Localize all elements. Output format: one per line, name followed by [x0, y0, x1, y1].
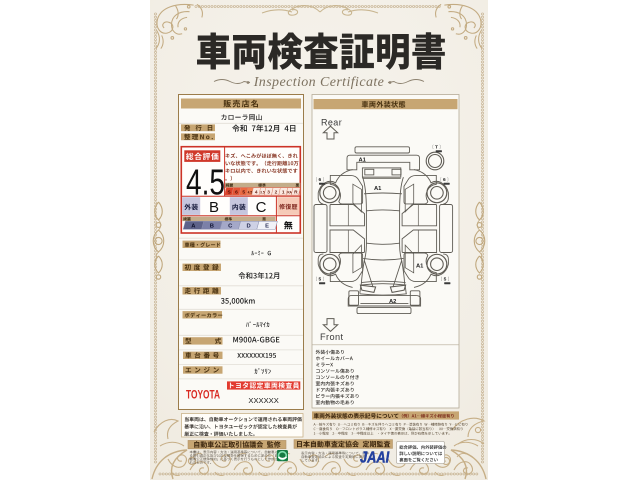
svg-text:D: D — [247, 223, 251, 229]
svg-text:Rear: Rear — [321, 118, 342, 128]
svg-text:T: T — [435, 145, 438, 151]
svg-text:6: 6 — [443, 177, 446, 183]
svg-text:R: R — [294, 190, 298, 196]
svg-text:C: C — [256, 199, 267, 216]
svg-text:5: 5 — [444, 277, 447, 283]
svg-text:3.5: 3.5 — [260, 191, 265, 195]
svg-text:B: B — [210, 223, 214, 229]
svg-text:4: 4 — [255, 190, 258, 196]
svg-text:A1: A1 — [374, 186, 382, 192]
svg-text:6: 6 — [318, 177, 321, 183]
svg-text:A1: A1 — [359, 158, 367, 164]
svg-text:A2: A2 — [389, 299, 396, 305]
svg-text:B: B — [209, 199, 219, 216]
svg-text:TOYOTA: TOYOTA — [186, 389, 221, 402]
svg-text:2: 2 — [275, 190, 278, 196]
svg-text:5: 5 — [318, 277, 321, 283]
svg-text:4.5: 4.5 — [248, 191, 253, 195]
svg-text:Inspection Certificate: Inspection Certificate — [253, 75, 385, 90]
svg-text:XXXXXX: XXXXXX — [248, 396, 278, 405]
svg-text:E: E — [265, 223, 269, 229]
svg-text:A1: A1 — [416, 264, 424, 270]
svg-text:5: 5 — [242, 190, 245, 196]
svg-text:1: 1 — [282, 190, 285, 196]
svg-text:RA: RA — [287, 191, 292, 195]
svg-text:6: 6 — [235, 190, 238, 196]
svg-text:JAAI: JAAI — [360, 449, 390, 467]
svg-text:3: 3 — [267, 190, 270, 196]
svg-text:Front: Front — [320, 332, 343, 342]
